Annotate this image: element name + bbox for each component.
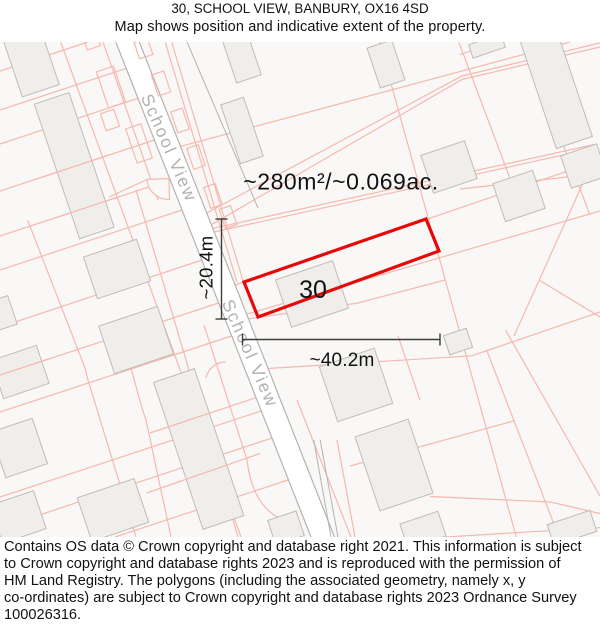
svg-text:~20.4m: ~20.4m — [195, 235, 216, 299]
svg-text:~280m²/~0.069ac.: ~280m²/~0.069ac. — [243, 169, 438, 195]
svg-text:30: 30 — [299, 276, 327, 304]
svg-text:~40.2m: ~40.2m — [309, 350, 374, 371]
